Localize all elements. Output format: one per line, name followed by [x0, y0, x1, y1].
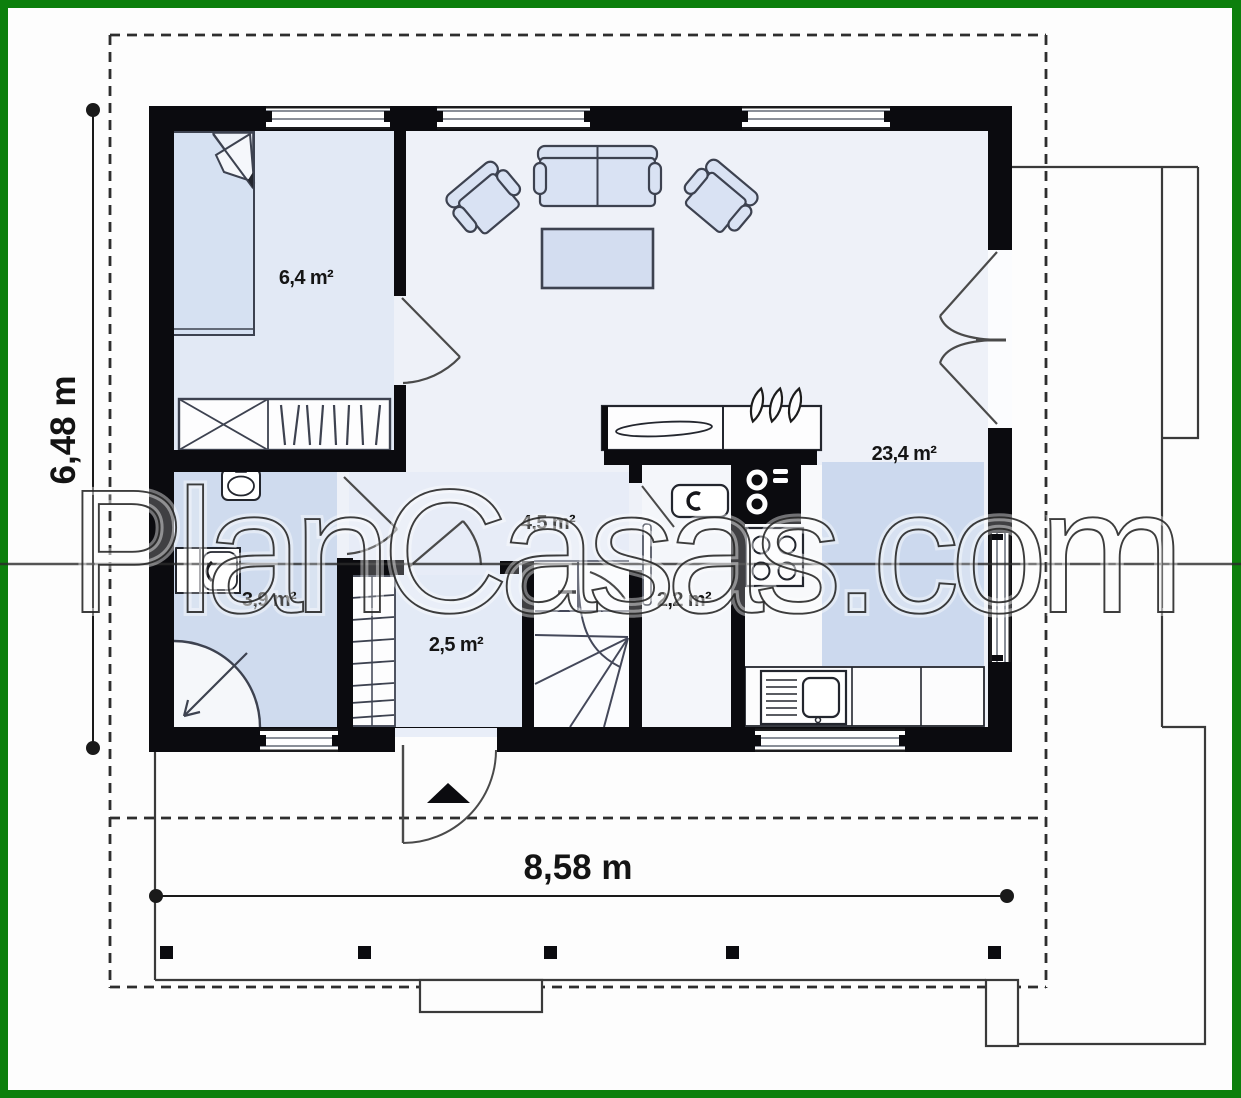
- svg-text:8,58 m: 8,58 m: [524, 848, 633, 887]
- svg-text:PlanCasas.com: PlanCasas.com: [68, 454, 1185, 650]
- svg-text:6,4 m²: 6,4 m²: [279, 267, 334, 289]
